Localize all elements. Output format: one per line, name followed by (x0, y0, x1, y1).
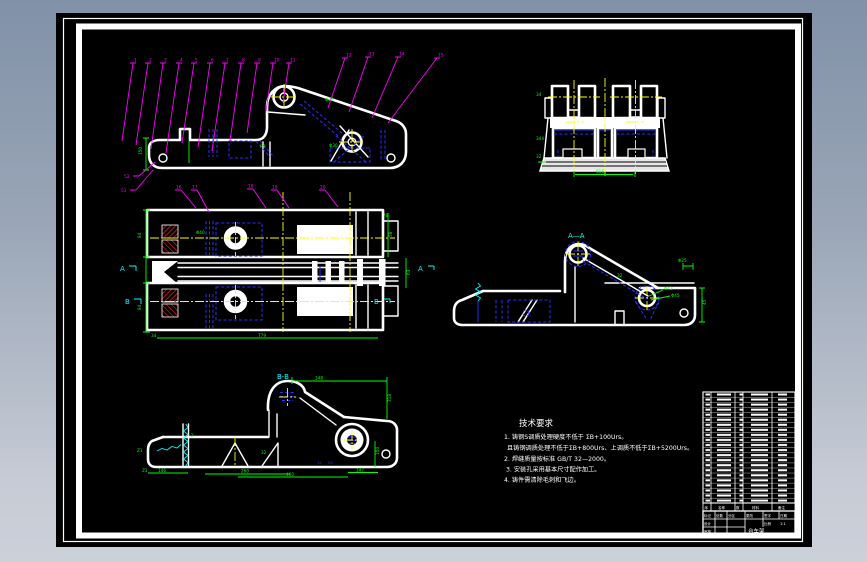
cad-viewer-page: 150 R8 Φ25 Φ30 1 2 3 4 5 6 7 8 9 10 11 1… (0, 0, 867, 562)
callout-number: 7 (226, 58, 229, 64)
dim-label: 34 (151, 333, 157, 338)
notes-title: 技术要求 (519, 418, 554, 429)
dim-label: 260 (241, 469, 249, 474)
bom-table: 序 名称 数 材料 备注 (703, 392, 795, 511)
callout-number: 3 (164, 58, 167, 64)
dim-label: R2 (328, 460, 334, 465)
dim-label: 616 (596, 169, 604, 174)
title-field: 处数 (716, 513, 724, 518)
title-field: 签字 (764, 513, 772, 518)
bom-grid (703, 392, 795, 503)
dim-label: Φ30 (329, 143, 338, 148)
dim-label: Φ45 (671, 293, 680, 298)
note-line: 3. 安装孔采用基本尺寸配作加工。 (506, 466, 601, 474)
dim-label: 146 (158, 468, 166, 473)
section-mark-a-left: A (120, 265, 125, 273)
bom-header: 序 (705, 505, 709, 510)
section-mark-b-left: B (125, 298, 130, 306)
callout-number: 52 (124, 174, 130, 180)
section-mark-a-right: A (418, 265, 423, 273)
callout-number: 6 (211, 58, 214, 64)
title-field: 设计 (704, 521, 712, 526)
dim-label: 84 (137, 304, 142, 310)
dim-label: 34 (536, 92, 542, 97)
hatch-block (162, 240, 178, 253)
dim-label: Φ40 (196, 230, 205, 235)
dim-label: 32 (536, 154, 542, 159)
dim-label: R8 (260, 144, 266, 149)
dim-label: 104 (375, 447, 380, 455)
dim-label: 147 (356, 468, 364, 473)
dim-label: Z1 (142, 468, 148, 473)
dim-label: Z1 (137, 448, 143, 453)
dim-label: 78 (383, 213, 389, 218)
dim-label: 45 (702, 299, 707, 305)
drawing-title: 台车架 (748, 527, 765, 535)
title-field: 审核 (704, 529, 712, 534)
base-slab (540, 158, 669, 171)
title-field: 日期 (780, 513, 788, 518)
note-line: 4. 铸件需清除毛刺和飞边。 (504, 476, 580, 484)
note-line: 且铸钢调质处理不低于ΣB+800Urs、上调质不低于ΣB+5200Urs。 (507, 444, 693, 452)
callout-number: 11 (290, 58, 296, 64)
title-field: 标记 (704, 513, 712, 518)
dim-label: 348 (315, 376, 323, 381)
dim-label: Φ25 (678, 258, 687, 263)
callout-number: 19 (272, 185, 278, 191)
callout-number: 18 (248, 184, 254, 190)
bom-header: 备注 (778, 505, 786, 510)
bom-header: 材料 (752, 505, 760, 510)
callout-number: 9 (258, 58, 261, 64)
callout-number: 2 (149, 58, 152, 64)
hatch-block (162, 289, 178, 302)
hatch-block (162, 225, 178, 238)
callout-number: 1 (134, 58, 137, 64)
section-mark-b-right: B (374, 298, 379, 306)
dim-label: 318 (387, 394, 392, 402)
title-field: 比例 (764, 521, 772, 526)
callout-number: 4 (180, 58, 183, 64)
callout-number: 51 (121, 188, 127, 194)
dim-label: Φ25 (325, 97, 334, 102)
dim-label: 63 (406, 269, 411, 275)
bom-header: 数 (736, 505, 740, 510)
dim-label: 32 (261, 450, 267, 455)
callout-number: 8 (242, 58, 245, 64)
title-field: 1:1 (780, 522, 786, 526)
callout-number: 20 (320, 185, 326, 191)
callout-number: 12 (346, 53, 352, 59)
callout-number: 16 (176, 185, 182, 191)
callout-number: 13 (369, 52, 375, 58)
dim-label: Φ43 (664, 286, 673, 291)
dim-label: 12 (317, 460, 322, 465)
callout-number: 14 (399, 52, 405, 58)
note-line: 2. 焊缝质量按标准 GB/T 32—2000。 (504, 455, 610, 463)
dim-label: 32 (617, 273, 623, 278)
note-line: 1. 铸钢S调质处理硬度不低于 ΣB+100Urs。 (504, 433, 627, 441)
dim-label: 84 (137, 232, 142, 238)
callout-number: 10 (274, 58, 280, 64)
title-field: 更改 (746, 513, 754, 518)
dim-label: 2 (191, 433, 194, 438)
callout-number: 15 (438, 53, 444, 59)
title-field: 分区 (728, 513, 736, 518)
dim-label: 58 (388, 231, 393, 237)
dim-label: 344 (536, 136, 544, 141)
dim-label: 150 (138, 147, 143, 155)
bom-header: 名称 (718, 505, 726, 510)
dim-label: 779 (258, 333, 266, 338)
callout-number: 17 (192, 185, 198, 191)
hatch-block (162, 304, 178, 317)
drawing-canvas[interactable]: 150 R8 Φ25 Φ30 1 2 3 4 5 6 7 8 9 10 11 1… (0, 0, 867, 562)
section-aa-label: A—A (568, 232, 585, 240)
callout-number: 5 (195, 58, 198, 64)
dim-label: 400 (286, 472, 294, 477)
